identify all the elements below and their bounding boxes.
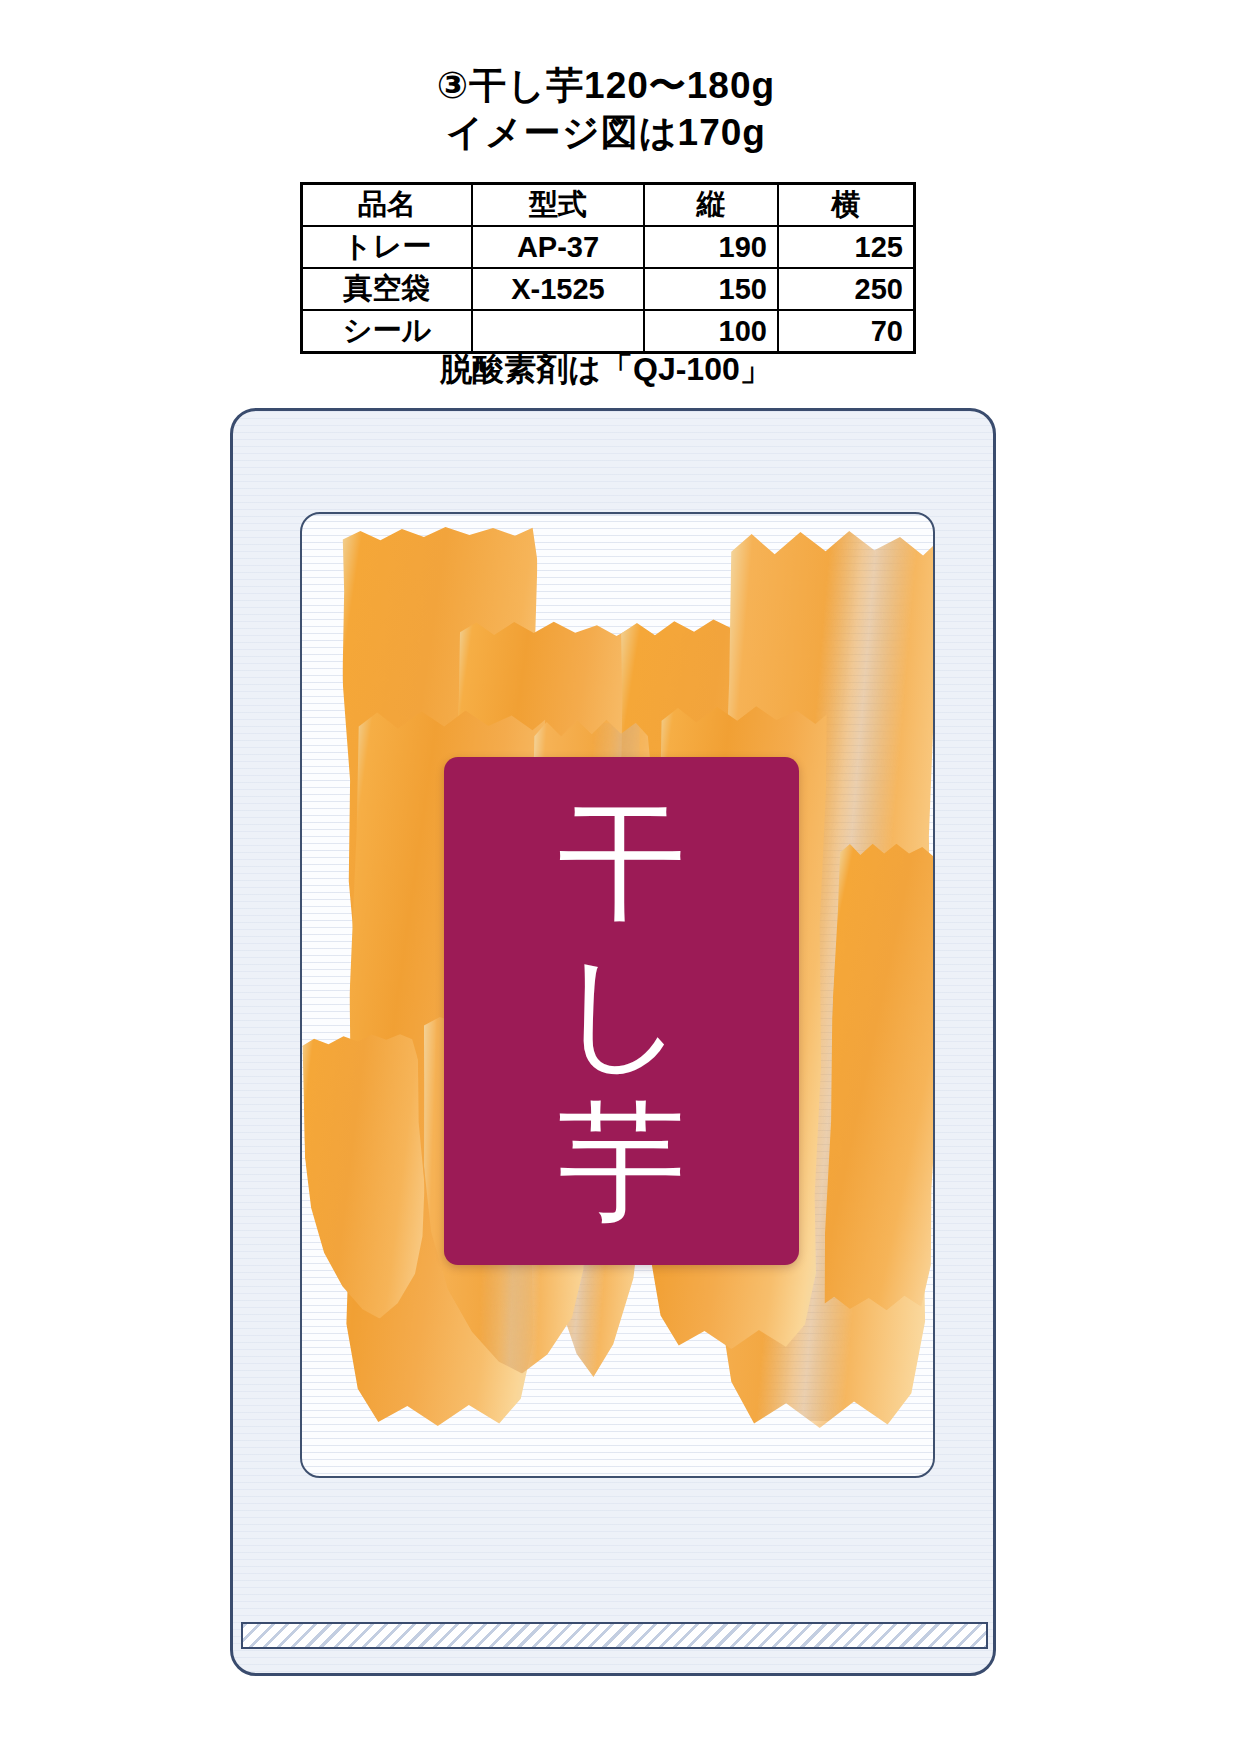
cell-width: 125 bbox=[778, 226, 915, 268]
product-label: 干 し 芋 bbox=[444, 757, 799, 1265]
table-row-tray: トレー AP-37 190 125 bbox=[302, 226, 915, 268]
cell-item-name: 真空袋 bbox=[302, 268, 473, 310]
dried-sweet-potato-slice bbox=[300, 1031, 431, 1322]
cell-width: 70 bbox=[778, 310, 915, 353]
cell-height: 150 bbox=[644, 268, 778, 310]
document-page: ③干し芋120〜180g イメージ図は170g 品名 型式 縦 横 トレー AP… bbox=[0, 0, 1241, 1754]
title-line-1: ③干し芋120〜180g bbox=[0, 62, 1212, 109]
label-char-2: し bbox=[556, 937, 687, 1087]
tray-illustration: 干 し 芋 bbox=[300, 512, 935, 1478]
table-header-row: 品名 型式 縦 横 bbox=[302, 184, 915, 227]
seal-strip bbox=[241, 1622, 988, 1649]
col-header-width: 横 bbox=[778, 184, 915, 227]
title-line-2: イメージ図は170g bbox=[0, 109, 1212, 156]
cell-width: 250 bbox=[778, 268, 915, 310]
cell-model bbox=[472, 310, 644, 353]
page-title: ③干し芋120〜180g イメージ図は170g bbox=[0, 62, 1212, 156]
label-char-3: 芋 bbox=[558, 1087, 686, 1237]
cell-height: 100 bbox=[644, 310, 778, 353]
col-header-height: 縦 bbox=[644, 184, 778, 227]
deoxidizer-note: 脱酸素剤は「QJ-100」 bbox=[0, 348, 1212, 392]
cell-item-name: シール bbox=[302, 310, 473, 353]
cell-model: X-1525 bbox=[472, 268, 644, 310]
spec-table: 品名 型式 縦 横 トレー AP-37 190 125 真空袋 X-1525 1… bbox=[300, 182, 916, 354]
vacuum-bag-illustration: 干 し 芋 bbox=[230, 408, 996, 1676]
table-row-vacuum-bag: 真空袋 X-1525 150 250 bbox=[302, 268, 915, 310]
dried-sweet-potato-slice bbox=[822, 840, 935, 1311]
cell-height: 190 bbox=[644, 226, 778, 268]
table-row-seal: シール 100 70 bbox=[302, 310, 915, 353]
col-header-model: 型式 bbox=[472, 184, 644, 227]
cell-model: AP-37 bbox=[472, 226, 644, 268]
label-char-1: 干 bbox=[558, 787, 686, 937]
cell-item-name: トレー bbox=[302, 226, 473, 268]
col-header-item-name: 品名 bbox=[302, 184, 473, 227]
